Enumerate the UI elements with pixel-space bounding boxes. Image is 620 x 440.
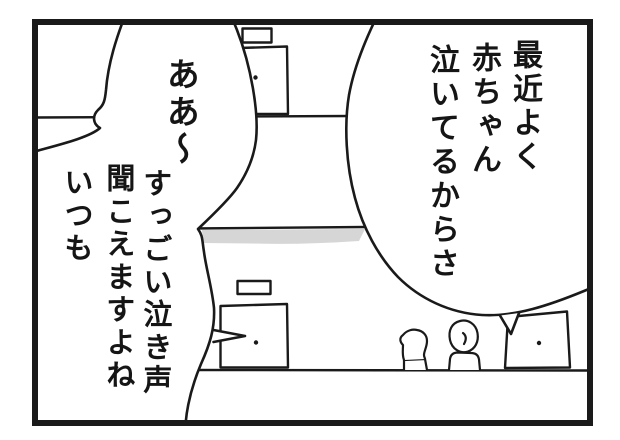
person-small — [400, 330, 427, 370]
person-small-head — [400, 330, 427, 360]
person-small-body — [404, 359, 427, 370]
eave-line — [192, 227, 366, 229]
speech-right-col-1: 最近よく — [508, 39, 541, 175]
comic-panel: 最近よく 赤ちゃん 泣いてるからさ ああ〜 すっごい泣き声 聞こえますよね いつ… — [0, 0, 620, 440]
speech-right-col-3: 泣いてるからさ — [425, 44, 458, 281]
speech-right-col-2: 赤ちゃん — [467, 42, 500, 178]
right-door-handle — [537, 341, 541, 345]
upper-sign — [243, 29, 272, 43]
lower-door-handle — [254, 340, 258, 344]
awning-shadow — [202, 229, 365, 244]
person-large-head — [449, 321, 477, 353]
ground-line — [190, 370, 592, 371]
lower-sign — [238, 281, 271, 294]
person-large-body — [449, 353, 480, 371]
person-large — [449, 321, 480, 370]
speech-left-col-1: ああ〜 — [162, 57, 198, 169]
upper-door-handle — [253, 75, 257, 79]
speech-left-col-3: 聞こえますよね — [102, 163, 134, 392]
speech-left-col-2: すっごい泣き声 — [139, 168, 171, 397]
speech-left-col-4: いつも — [60, 167, 92, 265]
